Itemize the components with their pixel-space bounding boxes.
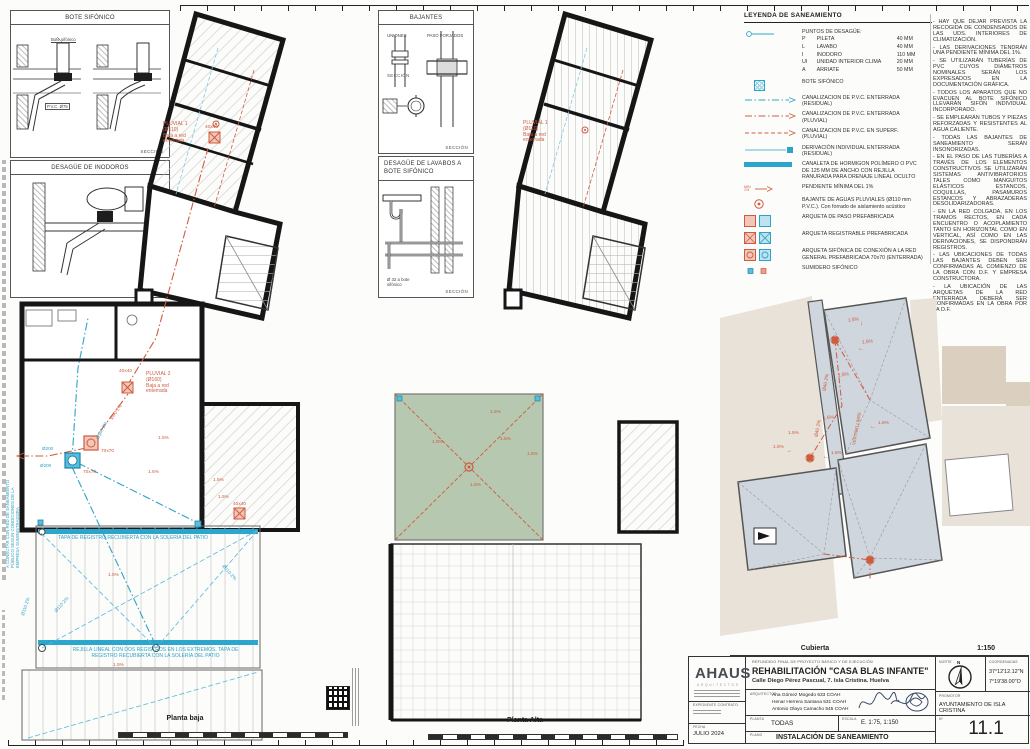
sumidero-icon	[744, 265, 802, 276]
firm-subtitle: ARQUITECTOS	[697, 683, 740, 687]
legend-drain-points: PUNTOS DE DESAGÜE: PPILETA40 MM LLAVABO4…	[744, 29, 932, 75]
qr-validation-text	[352, 668, 360, 726]
coord-lon: 7°19'38.00"O	[989, 679, 1021, 685]
plano-value: INSTALACIÓN DE SANEAMIENTO	[776, 734, 889, 741]
cubierta-plan: 1.5% ↓ 1.5% ← 1.5% ↑ 1.5% 1.5% 1.5% → 1.…	[720, 288, 1030, 663]
firm-contact-text	[694, 690, 740, 699]
drawing-sheet: BOTE SIFÓNICO Bote sifónico	[0, 0, 1030, 749]
pluvial-surface-line-icon	[744, 128, 802, 137]
arrow-right-icon: →	[786, 448, 792, 454]
coordenadas-label: COORDENADAS	[989, 660, 1018, 664]
note: - TODAS LAS BAJANTES DE SANEAMIENTO SERÁ…	[933, 136, 1027, 154]
qr-code	[326, 686, 350, 710]
planta-baja-scalebar	[118, 732, 348, 738]
note: - TODOS LOS APARATOS QUE NO EVACUEN AL B…	[933, 91, 1027, 115]
arqueta-sifonica-icon	[744, 248, 802, 261]
pipe-label: Ø200	[42, 446, 53, 451]
slope-label: 1.5%	[527, 452, 538, 457]
planta-alta-plan: PLUVIAL 1 (Ø110) Baja a red enterrada 1.…	[383, 8, 690, 743]
signatures	[855, 690, 933, 714]
legend-item: CANALIZACION DE P.V.C. ENTERRADA (RESIDU…	[744, 95, 932, 108]
cubierta-drawing	[720, 288, 1030, 663]
slope-label: 1.5%	[490, 410, 501, 415]
arqueta-registrable-icon	[744, 231, 802, 244]
title-block: AHAUS ARQUITECTOS EXPEDIENTE CONTRATO FE…	[688, 656, 1029, 744]
drain-row: PPILETA40 MM	[802, 36, 924, 44]
slope-label: 1.5%	[213, 478, 224, 483]
arqueta-size-label: 40x40	[205, 125, 218, 130]
cubierta-scale: 1:150	[945, 645, 995, 652]
planta-value: TODAS	[771, 720, 793, 727]
architect-name: Ana Gómez Mogedo 633 COAH	[772, 693, 841, 698]
arrow-up-icon: ↑	[832, 372, 835, 378]
arqueta-size-label: 40x40	[233, 502, 246, 507]
legend-panel: LEYENDA DE SANEAMIENTO PUNTOS DE DESAGÜE…	[744, 12, 932, 280]
derivacion-line-icon	[744, 145, 802, 154]
slope-label: 1.5%	[148, 470, 159, 475]
legend-item: ARQUETA REGISTRABLE PREFABRICADA	[744, 231, 932, 244]
slope-label: 1.5%	[432, 440, 443, 445]
note: - SE EMPLEARÁN TUBOS Y PIEZAS REFORZADAS…	[933, 116, 1027, 134]
legend-item: MIN 1% PENDIENTE MÍNIMA DEL 1%	[744, 184, 932, 193]
canaleta-icon	[744, 161, 802, 167]
note: - HAY QUE DEJAR PREVISTA LA RECOGIDA DE …	[933, 20, 1027, 44]
promotor-value: AYUNTAMIENTO DE ISLA CRISTINA	[939, 702, 1028, 714]
legend-item: DERIVACIÓN INDIVIDUAL ENTERRADA (RESIDUA…	[744, 145, 932, 158]
architect-name: Henar Herrera Santana 531 COAH	[772, 700, 846, 705]
arrow-left-icon: ←	[858, 346, 864, 352]
note: - EN LA RED COLGADA, EN LOS TRAMOS RECTO…	[933, 210, 1027, 251]
slope-label: 1.5%	[773, 445, 784, 450]
pluvial1-note: PLUVIAL 1 (Ø110) Baja a red enterrada	[163, 122, 188, 145]
coord-lat: 37°12'12.12"N	[989, 669, 1023, 675]
planta-alta-drawing	[383, 8, 690, 743]
drain-row: IINODORO110 MM	[802, 52, 924, 60]
drain-points-label: PUNTOS DE DESAGÜE:	[802, 29, 924, 35]
legend-item: CANALIZACION DE P.V.C. EN SUPERF. (PLUVI…	[744, 128, 932, 141]
drain-row: UIUNIDAD INTERIOR CLIMA20 MM	[802, 59, 924, 67]
legend-title: LEYENDA DE SANEAMIENTO	[744, 12, 932, 23]
expediente-label: EXPEDIENTE CONTRATO	[693, 703, 738, 707]
planta-baja-title: Planta baja	[120, 715, 250, 722]
drain-point-icon	[744, 29, 802, 38]
slope-label: 1.5%	[218, 495, 229, 500]
plot-stamp-text-2	[2, 610, 5, 700]
project-address: Calle Diego Pérez Pascual, 7. Isla Crist…	[752, 678, 889, 684]
expediente-value	[693, 710, 721, 714]
planta-alta-title: Planta Alta	[460, 717, 590, 724]
legend-item: BOTE SIFÓNICO	[744, 79, 932, 91]
residual-buried-line-icon	[744, 95, 802, 104]
slope-label: 1.5%	[470, 483, 481, 488]
pluvial-buried-line-icon	[744, 111, 802, 120]
rejilla-uno-note: REJILLA LINEAL CON UN REGISTRO EN EL EXT…	[28, 530, 238, 542]
planta-baja-drawing	[8, 8, 353, 743]
pendiente-icon: MIN 1%	[744, 184, 802, 193]
arrow-down-icon: ↓	[860, 321, 863, 327]
arqueta-size-label: 70x70	[101, 449, 114, 454]
arqueta-size-label: 40x40	[119, 369, 132, 374]
arrow-left-icon: ←	[823, 454, 829, 460]
slope-label: 1.5%	[878, 421, 889, 426]
conectar-red-note: A CONECTAR CON RED DE SANEAMIENTO PÚBLIC…	[6, 368, 21, 568]
bajante-pluvial-icon	[744, 197, 802, 210]
slope-label: 1.5%	[788, 431, 799, 436]
slope-label: 1.5%	[500, 437, 511, 442]
legend-item: ARQUETA DE PASO PREFABRICADA	[744, 214, 932, 227]
plano-label: PLANO	[750, 733, 763, 737]
planta-baja-plan: PLUVIAL 1 (Ø110) Baja a red enterrada 40…	[8, 8, 353, 743]
north-arrow-icon	[945, 664, 975, 690]
sheet-number: 11.1	[951, 718, 1021, 740]
legend-item: ARQUETA SIFÓNICA DE CONEXIÓN A LA RED GE…	[744, 248, 932, 261]
promotor-label: PROMOTOR	[939, 694, 961, 698]
note: - LAS DERIVACIONES TENDRÁN UNA PENDIENTE…	[933, 46, 1027, 58]
arqueta-paso-icon	[744, 214, 802, 227]
note: - EN EL PASO DE LAS TUBERÍAS A TRAVÉS DE…	[933, 155, 1027, 208]
legend-item: CANALIZACION DE P.V.C. ENTERRADA (PLUVIA…	[744, 111, 932, 124]
planta-alta-scalebar	[428, 734, 678, 740]
cubierta-title: Cubierta	[770, 645, 860, 652]
firm-logo: AHAUS	[695, 665, 751, 682]
sheet-number-label: Nº	[939, 717, 943, 721]
fecha-value: JULIO 2024	[693, 731, 724, 737]
bote-sifonico-icon	[744, 79, 802, 91]
rejilla-dos-note: REJILLA LINEAL CON DOS REGISTROS EN LOS …	[58, 648, 253, 660]
pluvial2-note: PLUVIAL 2 (Ø160) Baja a red enterrada	[146, 372, 171, 395]
legend-item: SUMIDERO SIFÓNICO	[744, 265, 932, 276]
arrow-left-icon: ←	[870, 424, 876, 430]
drain-row: AARRIATE50 MM	[802, 67, 924, 75]
slope-label: 1.5%	[831, 451, 842, 456]
pluvial1-note: PLUVIAL 1 (Ø110) Baja a red enterrada	[523, 121, 548, 144]
note: - LAS UBICACIONES DE TODAS LAS BAJANTES …	[933, 253, 1027, 282]
general-notes: - HAY QUE DEJAR PREVISTA LA RECOGIDA DE …	[933, 20, 1027, 316]
architect-name: Antonio Olayo Camacho 545 COAH	[772, 707, 849, 712]
refundido-label: REFUNDIDO FINAL DE PROYECTO BÁSICO Y DE …	[752, 660, 873, 664]
legend-item: CANALETA DE HORMIGON POLÍMERO O PVC DE 1…	[744, 161, 932, 180]
slope-label: 1.5%	[113, 663, 124, 668]
project-title: REHABILITACIÓN "CASA BLAS INFANTE"	[752, 666, 928, 676]
legend-item: BAJANTE DE AGUAS PLUVIALES (Ø110 mm P.V.…	[744, 197, 932, 210]
escala-value: E. 1:75, 1:150	[861, 720, 898, 726]
planta-label: PLANTA	[750, 717, 764, 721]
fecha-label: FECHA	[693, 725, 706, 729]
drain-row: LLAVABO40 MM	[802, 44, 924, 52]
escala-label: ESCALA	[842, 717, 857, 721]
slope-label: 1.5%	[158, 436, 169, 441]
slope-label: 1.5%	[108, 573, 119, 578]
arqueta-size-label: 70x70	[83, 470, 96, 475]
pipe-label: Ø200	[40, 463, 51, 468]
note: - SE UTILIZARÁN TUBERÍAS DE PVC CUYOS DI…	[933, 59, 1027, 88]
